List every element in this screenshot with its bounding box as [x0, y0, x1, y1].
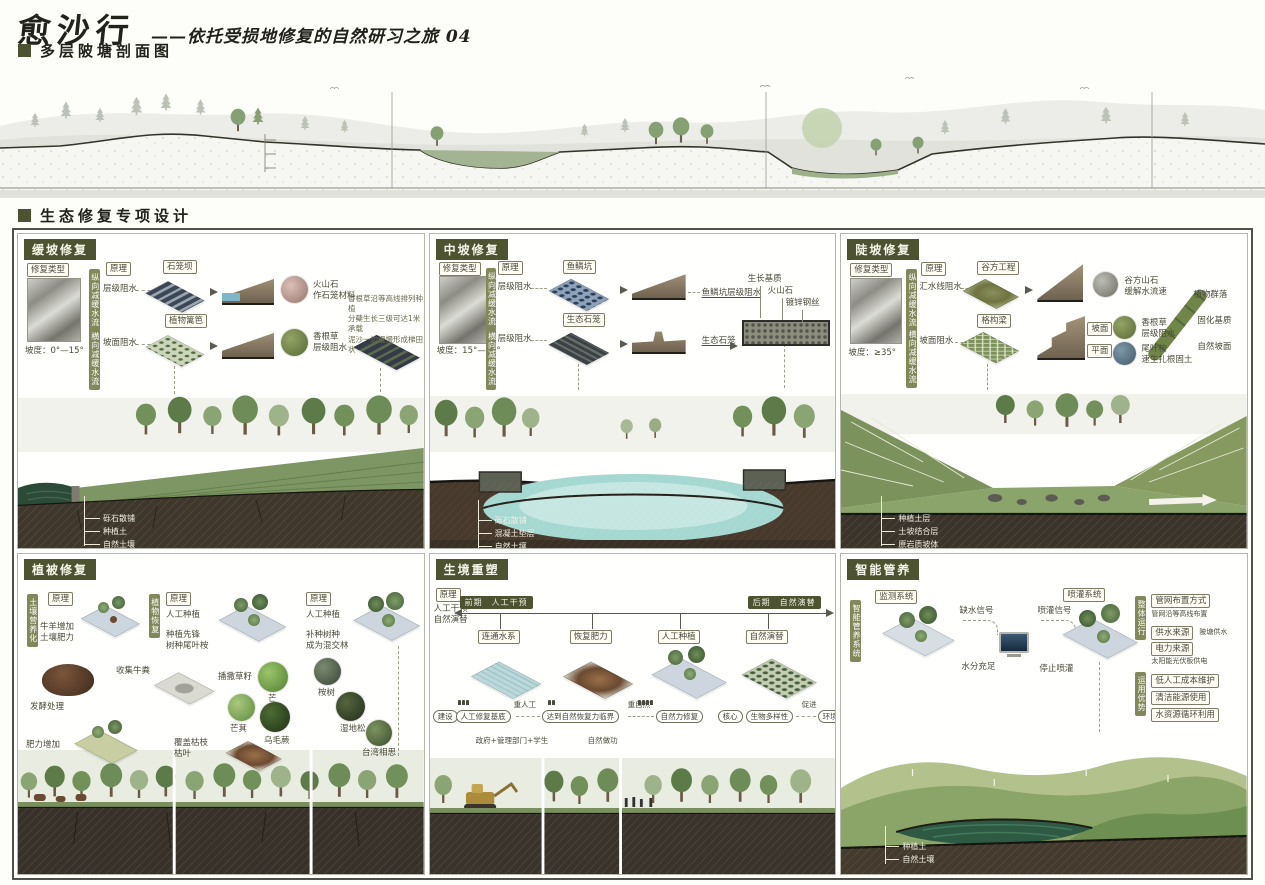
- vertical-tag-operation: 整体运行: [1135, 596, 1146, 640]
- slope-section-mini: [632, 272, 686, 298]
- poster-subtitle: ——依托受损地修复的自然研习之旅 04: [151, 22, 472, 52]
- group2-sub: 种植先锋 树种尾叶桉: [166, 630, 209, 652]
- advantage-item: 清洁能源使用: [1151, 691, 1210, 705]
- panel-tag: 陡坡修复: [847, 239, 919, 260]
- panel-habitat-reshape: 生境重塑 原理 人工干预 自然演替 前期 人工干预 后期 自然演替 连通水系 恢…: [429, 553, 837, 875]
- run-key: 供水来源: [1151, 626, 1193, 640]
- soil-leader: [478, 500, 479, 548]
- surface-label: 坡面: [1087, 322, 1112, 336]
- vertical-tag-longitudinal: 纵向减缓水流: [89, 269, 100, 331]
- soil-label: 自然土壤: [495, 541, 527, 549]
- middle-slope-render: [430, 390, 836, 549]
- plant-circle-blechnum: [260, 702, 290, 732]
- volcanic-stone-circle: [281, 276, 308, 303]
- design-grid: 缓坡修复 修复类型 坡度：0°—15° 原理 纵向减缓水流 层级阻水 石笼坝 火…: [12, 228, 1253, 880]
- type-label: 修复类型: [439, 262, 481, 276]
- timeline-start: 前期 人工干预: [460, 596, 533, 609]
- flow-pill: 核心: [718, 710, 743, 723]
- soil-leader: [885, 846, 899, 847]
- timeline-arrow-right: [826, 609, 837, 617]
- soil-label: 自然土壤: [103, 539, 135, 549]
- section-square-icon: [18, 209, 31, 222]
- tree-dot: [108, 720, 122, 734]
- group2-title: 人工种植: [166, 610, 200, 621]
- run-value: 陂塘供水: [1199, 628, 1227, 637]
- vetiver-note: 香根草沿等高线排列种植 分蘖生长三级可达1米 承载 泥沙一边慢慢形成梯田状: [348, 294, 425, 355]
- soil-leader: [881, 496, 882, 546]
- fish-scale-pit-axon: [543, 270, 613, 310]
- eco-gabion-axon: [543, 324, 613, 364]
- seed-plot-axon: [150, 662, 216, 706]
- panel-middle-slope: 中坡修复 修复类型 坡度：15°—35° 原理 纵向减缓水流 层级阻水 鱼鳞坑 …: [429, 233, 837, 549]
- plant-circle-dicranopteris: [228, 694, 255, 721]
- dung-pile: [42, 664, 94, 696]
- advantage-item: 水资源循环利用: [1151, 708, 1219, 722]
- panel-tag: 生境重塑: [436, 559, 508, 580]
- pond-section-illustration: [0, 56, 1265, 198]
- row2-material-2: 尾叶桉 速生扎根固土: [1141, 344, 1192, 366]
- type-label: 修复类型: [27, 263, 69, 277]
- principle-label: 原理: [306, 592, 331, 606]
- run-value: 太阳能光伏板供电: [1151, 657, 1241, 666]
- soil-label: 自然土壤: [902, 854, 934, 865]
- principle-label: 原理: [48, 592, 73, 606]
- monitor-system-label: 监测系统: [875, 590, 917, 604]
- ferment: 发酵处理: [30, 702, 64, 713]
- row1-method: 层级阻水: [498, 282, 532, 293]
- slope-section-mini: [222, 276, 274, 303]
- tree-dot: [98, 602, 109, 613]
- group3-title: 人工种植: [306, 610, 340, 621]
- plant-hedge-axon: [140, 326, 208, 366]
- soil-label: 原岩质坡体: [898, 539, 938, 549]
- soil-leader: [885, 859, 899, 860]
- people-icon: [458, 700, 469, 705]
- vertical-tag-plant-recovery: 植物恢复: [149, 594, 160, 638]
- timeline-node: 连通水系: [478, 630, 520, 644]
- plant-circle-acacia: [366, 720, 392, 746]
- site-photo: [850, 278, 902, 344]
- lattice-beam-axon: [955, 322, 1021, 364]
- row1-result: 鱼鳞坑层级阻水: [702, 288, 762, 299]
- valley-stone-circle: [1093, 272, 1118, 297]
- flow-arc-label: 重自然: [628, 700, 651, 710]
- slope-section-mini: [222, 330, 274, 357]
- habitat-render: [430, 758, 836, 875]
- group1-text: 牛羊增加 土壤肥力: [40, 622, 74, 644]
- principle-label: 原理: [498, 261, 523, 275]
- flow-pill: 达到自然恢复力临界: [542, 710, 620, 723]
- soil-label: 种植土: [103, 526, 127, 537]
- plant-label: 湿地松: [340, 724, 366, 735]
- fertility-up: 肥力增加: [26, 740, 60, 751]
- soil-label: 砾石散铺: [103, 513, 135, 524]
- row2-box: 植物篱笆: [165, 314, 207, 328]
- vertical-tag-lateral: 横向减缓水流: [89, 328, 100, 390]
- vertical-tag-soil-nutrition: 土壤营养化: [27, 594, 38, 647]
- eucalyptus-circle: [1113, 342, 1136, 365]
- tree-dot: [688, 646, 705, 663]
- run-key: 电力来源: [1151, 642, 1193, 656]
- signal-stop: 停止喷灌: [1039, 664, 1073, 675]
- row2-material-1: 香根草 层级阻水: [1141, 318, 1175, 340]
- water-plot-axon: [466, 650, 544, 702]
- tree-dot: [112, 596, 125, 609]
- row2-material: 香根草 层级阻水: [313, 332, 347, 354]
- timeline-tick: [768, 613, 769, 629]
- plant-circle-slash-pine: [336, 692, 365, 721]
- signal-moist-ok: 水分充足: [961, 662, 995, 673]
- timeline-line: [456, 613, 828, 614]
- tree-dot: [234, 598, 248, 612]
- timeline-node: 自然演替: [746, 630, 788, 644]
- soil-leader: [84, 518, 100, 519]
- run-key: 管网布置方式: [1151, 594, 1210, 608]
- principle-label: 原理: [106, 262, 131, 276]
- soil-leader: [84, 544, 100, 545]
- right-label: 自然坡面: [1197, 342, 1231, 353]
- detail-label: 生长基质: [748, 274, 782, 285]
- vertical-tag-smart-system: 智能管养系统: [850, 600, 861, 662]
- handover-icon: [548, 700, 555, 705]
- plant-label: 乌毛蕨: [264, 736, 290, 747]
- nature-work-text: 自然做功: [588, 736, 618, 746]
- flow-pill: 自然力修复: [656, 710, 704, 723]
- plant-label: 芒萁: [230, 724, 247, 735]
- gentle-slope-render: [18, 390, 424, 549]
- soil-leader: [84, 496, 85, 546]
- row1-method: 汇水线阻水: [919, 282, 962, 293]
- mulch-text: 覆盖枯枝 枯叶: [174, 738, 208, 760]
- site-photo: [27, 278, 81, 342]
- tree-dot: [382, 614, 395, 627]
- timeline-tick: [680, 613, 681, 629]
- flow-arc-label: 重人工: [514, 700, 537, 710]
- vertical-tag-lateral: 横向减缓水流: [486, 328, 497, 390]
- run-value: 管网沿等高线布置: [1151, 610, 1241, 619]
- collect-dung: 收集牛粪: [116, 666, 150, 677]
- computer-icon: [999, 632, 1029, 657]
- steep-section-mini: [1037, 316, 1085, 358]
- advantage-item: 低人工成本维护: [1151, 674, 1219, 688]
- panel-tag: 智能管养: [847, 559, 919, 580]
- vertical-tag-longitudinal: 纵向减缓水流: [906, 269, 917, 331]
- section-overview: 种植土层 自然土壤 原岩质坡体 源头修复区 多层陂塘区 湿地景观区 认领种植区: [0, 56, 1265, 198]
- surface-label: 平面: [1087, 344, 1112, 358]
- tree-dot: [386, 592, 404, 610]
- vetiver-circle: [1113, 316, 1136, 339]
- principle-label: 原理: [166, 592, 191, 606]
- soil-leader: [478, 546, 492, 547]
- soil-leader: [881, 544, 895, 545]
- smart-maintenance-render: [841, 724, 1247, 875]
- panel-tag: 中坡修复: [436, 239, 508, 260]
- row2-method: 层级阻水: [498, 334, 532, 345]
- soil-leader: [478, 533, 492, 534]
- row1-box: 鱼鳞坑: [563, 260, 597, 274]
- tree-dot: [684, 668, 696, 680]
- panel-steep-slope: 陡坡修复 修复类型 坡度：≥35° 原理 纵向减缓水流 汇水线阻水 谷方工程 谷…: [840, 233, 1248, 549]
- fertile-plot-axon: [70, 720, 140, 766]
- soil-leader: [881, 518, 895, 519]
- gabion-dam-axon: [140, 272, 208, 312]
- plant-circle-eucalyptus: [314, 658, 341, 685]
- right-label: 植物群落: [1193, 290, 1227, 301]
- slope-range: 坡度：≥35°: [848, 348, 896, 359]
- timeline-node: 恢复肥力: [570, 630, 612, 644]
- arrow-icon: [730, 342, 742, 350]
- plant-label: 芒: [268, 694, 277, 705]
- row1-material: 谷方山石 缓解水流速: [1124, 276, 1167, 298]
- soil-label: 种植土层: [898, 513, 930, 524]
- flow-pill: 人工修复基底: [456, 710, 511, 723]
- panel-tag: 植被修复: [24, 559, 96, 580]
- detail-label: 火山石: [768, 286, 794, 297]
- row2-box: 生态石笼: [563, 313, 605, 327]
- slope-section-mini: [632, 326, 686, 352]
- timeline-node: 人工种植: [658, 630, 700, 644]
- tree-dot: [368, 596, 384, 612]
- detail-label: 镀锌钢丝: [786, 298, 820, 309]
- row2-method: 坡面阻水: [919, 336, 953, 347]
- principle-label: 原理: [436, 588, 461, 602]
- arrow-icon: [1025, 286, 1037, 294]
- gabion-detail-box: [742, 320, 830, 346]
- group3-sub: 补种树种 成为混交林: [306, 630, 349, 652]
- panel-gentle-slope: 缓坡修复 修复类型 坡度：0°—15° 原理 纵向减缓水流 层级阻水 石笼坝 火…: [17, 233, 425, 549]
- tree-dot: [668, 650, 683, 665]
- soil-leader: [84, 531, 100, 532]
- section-2-title: 生态修复专项设计: [40, 205, 192, 226]
- soil-label: 混凝土垫层: [495, 528, 535, 539]
- poster-page: 愈沙行 ——依托受损地修复的自然研习之旅 04 多层陂塘剖面图: [0, 0, 1265, 885]
- signal-water-shortage: 缺水信号: [959, 606, 993, 617]
- vegetation-render: [18, 750, 424, 875]
- soil-leader: [478, 520, 492, 521]
- spray-system-label: 喷灌系统: [1063, 588, 1105, 602]
- row1-method: 层级阻水: [103, 284, 137, 295]
- vertical-tag-longitudinal: 纵向减缓水流: [486, 268, 497, 330]
- signal-spray: 喷灌信号: [1037, 606, 1071, 617]
- vertical-tag-lateral: 横向减缓水流: [906, 326, 917, 388]
- flow-pill: 环境韧性: [818, 710, 837, 723]
- tree-dot: [248, 614, 260, 626]
- soil-label: 种植土: [902, 841, 926, 852]
- soil-plot-axon: [558, 650, 636, 702]
- soil-label: 砾石散铺: [495, 515, 527, 526]
- timeline-tick: [500, 613, 501, 629]
- succession-plot-axon: [736, 646, 820, 702]
- row1-box: 谷方工程: [977, 261, 1019, 275]
- soil-label: 土坡结合层: [898, 526, 938, 537]
- section-header-2: 生态修复专项设计: [18, 205, 192, 226]
- valley-mound-axon: [959, 270, 1021, 310]
- right-label: 固化基质: [1197, 316, 1231, 327]
- actors-text: 政府+管理部门+学生: [476, 736, 549, 746]
- timeline-tick: [592, 613, 593, 629]
- panel-vegetation-restore: 植被修复 土壤营养化 原理 牛羊增加 土壤肥力 收集牛粪 发酵处理 肥力增加 植…: [17, 553, 425, 875]
- panel-smart-maintenance: 智能管养 智能管养系统 监测系统 缺水信号 水分充足 喷灌信号 喷灌系统 停止喷…: [840, 553, 1248, 875]
- vetiver-circle: [281, 329, 308, 356]
- tree-dot: [252, 594, 268, 610]
- arrow-icon: [620, 286, 632, 294]
- plant-label: 桉树: [318, 688, 335, 699]
- arrow-icon: [210, 288, 222, 296]
- plant-label: 台湾相思: [362, 748, 396, 759]
- plant-circle-miscanthus: [258, 662, 288, 692]
- slope-range: 坡度：0°—15°: [25, 346, 84, 357]
- soil-leader: [881, 531, 895, 532]
- row2-box: 格构梁: [977, 314, 1011, 328]
- principle-label: 原理: [921, 262, 946, 276]
- section-header-1: 多层陂塘剖面图: [18, 40, 173, 61]
- steep-section-mini: [1037, 264, 1083, 300]
- timeline-end: 后期 自然演替: [748, 596, 821, 609]
- panel-tag: 缓坡修复: [24, 239, 96, 260]
- section-square-icon: [18, 44, 31, 57]
- arrow-icon: [620, 340, 632, 348]
- flow-pill: 生物多样性: [746, 710, 794, 723]
- cow-dot: [110, 616, 117, 623]
- site-photo: [439, 276, 487, 344]
- section-1-title: 多层陂塘剖面图: [40, 40, 173, 61]
- tree-dot: [92, 726, 104, 738]
- vertical-tag-advantage: 运用优势: [1135, 672, 1146, 716]
- flow-arc-label: 促进: [802, 700, 817, 710]
- arrow-icon: [210, 342, 222, 350]
- sow-seed: 播撒草籽: [218, 672, 252, 683]
- row1-box: 石笼坝: [163, 260, 197, 274]
- flow-pill: 建设: [433, 710, 458, 723]
- row2-method: 坡面阻水: [103, 338, 137, 349]
- timeline-arrow-left: [450, 609, 462, 617]
- type-label: 修复类型: [850, 263, 892, 277]
